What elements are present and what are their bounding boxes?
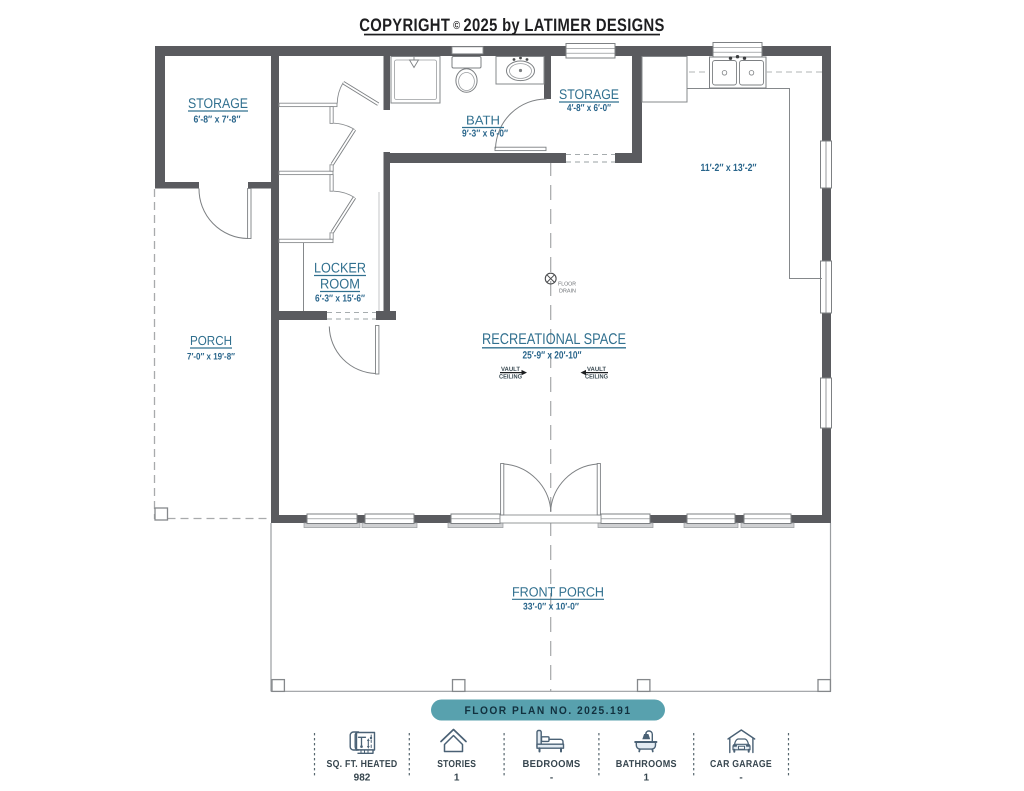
svg-text:FLOOR PLAN NO. 2025.191: FLOOR PLAN NO. 2025.191 [465,705,632,717]
svg-text:1: 1 [644,773,650,784]
svg-text:1: 1 [454,773,460,784]
svg-text:RECREATIONAL SPACE: RECREATIONAL SPACE [482,331,626,348]
svg-text:ROOM: ROOM [320,276,360,292]
svg-text:LOCKER: LOCKER [314,260,366,276]
svg-text:BEDROOMS: BEDROOMS [523,759,581,770]
svg-text:STORAGE: STORAGE [559,86,619,102]
svg-text:-: - [739,773,742,784]
svg-text:25′-9″ x 20′-10″: 25′-9″ x 20′-10″ [523,350,582,362]
svg-text:BATH: BATH [466,113,500,128]
svg-text:9′-3″ x 6′-0″: 9′-3″ x 6′-0″ [462,129,508,140]
svg-text:COPYRIGHT © 2025 by LATIMER DE: COPYRIGHT © 2025 by LATIMER DESIGNS [359,15,664,35]
svg-text:SQ. FT. HEATED: SQ. FT. HEATED [327,759,398,770]
svg-text:7′-0″ x 19′-8″: 7′-0″ x 19′-8″ [187,352,235,363]
svg-text:6′-3″ x 15′-6″: 6′-3″ x 15′-6″ [315,294,365,305]
svg-text:FLOOR: FLOOR [558,281,576,287]
svg-text:11′-2″ x 13′-2″: 11′-2″ x 13′-2″ [701,162,757,174]
svg-text:-: - [550,773,553,784]
svg-text:4′-8″ x 6′-0″: 4′-8″ x 6′-0″ [567,103,611,114]
svg-text:STORIES: STORIES [437,759,476,770]
svg-text:BATHROOMS: BATHROOMS [616,759,677,770]
svg-text:CEILING: CEILING [585,373,608,380]
svg-text:33′-0″ x 10′-0″: 33′-0″ x 10′-0″ [523,602,579,613]
svg-text:FRONT PORCH: FRONT PORCH [512,585,604,600]
svg-text:982: 982 [354,773,371,784]
svg-text:STORAGE: STORAGE [188,95,248,111]
svg-text:6′-8″ x 7′-8″: 6′-8″ x 7′-8″ [194,115,241,126]
svg-text:VAULT: VAULT [501,366,520,373]
svg-text:CEILING: CEILING [499,373,522,380]
svg-text:DRAIN: DRAIN [559,289,576,295]
svg-text:CAR GARAGE: CAR GARAGE [710,759,772,770]
svg-text:VAULT: VAULT [587,366,606,373]
svg-text:PORCH: PORCH [190,333,232,348]
